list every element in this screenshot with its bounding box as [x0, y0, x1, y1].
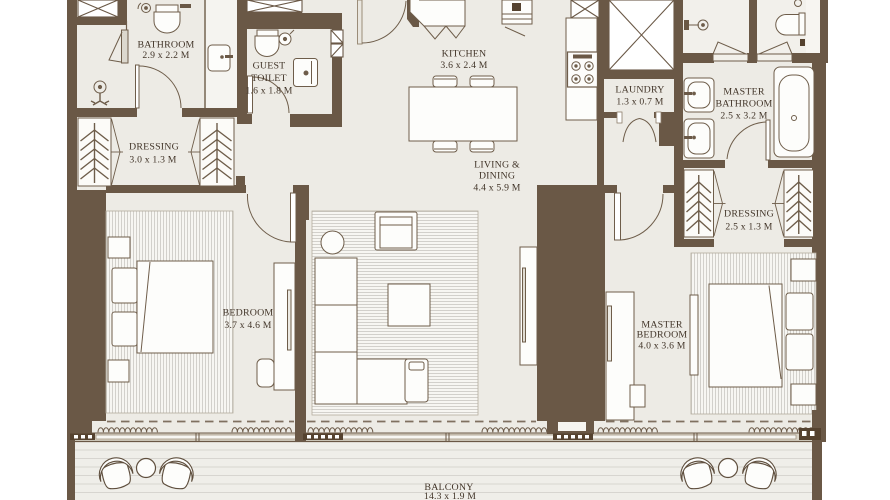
svg-text:2.5 x 3.2 M: 2.5 x 3.2 M: [720, 111, 767, 122]
svg-text:BATHROOM: BATHROOM: [715, 99, 772, 110]
svg-text:4.0 x 3.6 M: 4.0 x 3.6 M: [638, 341, 685, 352]
svg-text:BEDROOM: BEDROOM: [637, 330, 688, 341]
svg-text:3.0 x 1.3 M: 3.0 x 1.3 M: [129, 155, 176, 166]
svg-text:BATHROOM: BATHROOM: [137, 40, 194, 51]
svg-text:1.6 x 1.8 M: 1.6 x 1.8 M: [245, 86, 292, 97]
svg-text:3.7 x 4.6 M: 3.7 x 4.6 M: [224, 320, 271, 331]
svg-text:MASTER: MASTER: [723, 87, 764, 98]
svg-text:3.6 x 2.4 M: 3.6 x 2.4 M: [440, 60, 487, 71]
svg-text:14.3 x 1.9 M: 14.3 x 1.9 M: [424, 491, 476, 500]
svg-text:LIVING &: LIVING &: [474, 160, 520, 171]
svg-text:LAUNDRY: LAUNDRY: [615, 85, 664, 96]
svg-text:1.3 x 0.7 M: 1.3 x 0.7 M: [616, 97, 663, 108]
svg-text:GUEST: GUEST: [253, 61, 286, 72]
svg-text:DRESSING: DRESSING: [129, 142, 179, 153]
svg-text:TOILET: TOILET: [251, 73, 287, 84]
svg-text:KITCHEN: KITCHEN: [442, 49, 487, 60]
svg-text:BEDROOM: BEDROOM: [223, 308, 274, 319]
svg-text:DRESSING: DRESSING: [724, 209, 774, 220]
svg-text:DINING: DINING: [479, 171, 515, 182]
svg-text:2.9 x 2.2 M: 2.9 x 2.2 M: [142, 50, 189, 61]
svg-text:2.5 x 1.3 M: 2.5 x 1.3 M: [725, 222, 772, 233]
svg-text:4.4 x 5.9 M: 4.4 x 5.9 M: [473, 183, 520, 194]
